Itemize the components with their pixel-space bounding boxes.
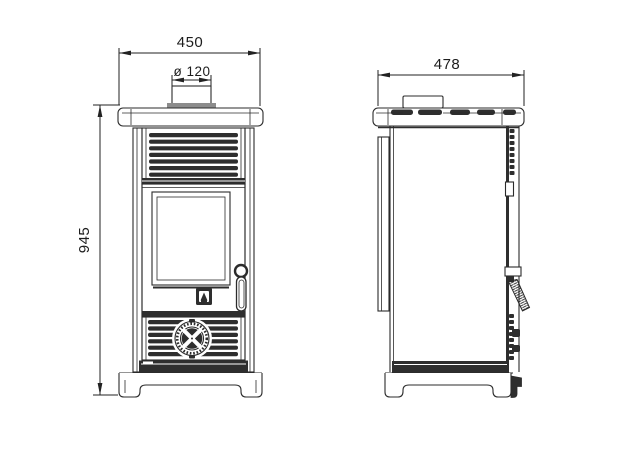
dimension-height: 945 (76, 105, 120, 395)
side-base-feet (385, 373, 522, 398)
height-label: 945 (76, 227, 93, 254)
base-plinth (139, 361, 248, 373)
front-view: 450 ø 120 945 (76, 34, 263, 397)
flue-collar (167, 86, 216, 108)
top-vent-grille (142, 128, 245, 184)
side-top-louver-ends (510, 129, 515, 175)
flue-diameter-label: ø 120 (173, 64, 210, 79)
side-flue-collar (403, 96, 443, 108)
bottom-vent-grille (142, 317, 245, 360)
side-view: 478 (373, 56, 530, 398)
brand-badge (196, 288, 212, 305)
hinge-profile (506, 182, 514, 196)
base-feet (119, 373, 262, 397)
top-plate (118, 108, 263, 127)
rear-heat-shield (378, 137, 389, 311)
side-body (390, 126, 519, 372)
front-width-label: 450 (177, 34, 204, 51)
door (142, 184, 247, 317)
door-handle-knob (235, 265, 247, 277)
door-handle (235, 265, 247, 311)
drawing-svg: 450 ø 120 945 (0, 0, 624, 460)
side-top-plate (373, 96, 524, 128)
air-control-dial (172, 319, 212, 359)
dimension-flue-diameter: ø 120 (172, 64, 211, 86)
depth-label: 478 (434, 56, 461, 73)
door-edge-profile (506, 126, 509, 372)
dimension-depth: 478 (378, 56, 524, 106)
door-handle-lever (237, 277, 247, 311)
stove-technical-drawing: 450 ø 120 945 (0, 0, 624, 460)
side-bottom-louver-ends (509, 314, 520, 360)
door-window (152, 192, 230, 288)
side-base-plinth (392, 361, 509, 373)
